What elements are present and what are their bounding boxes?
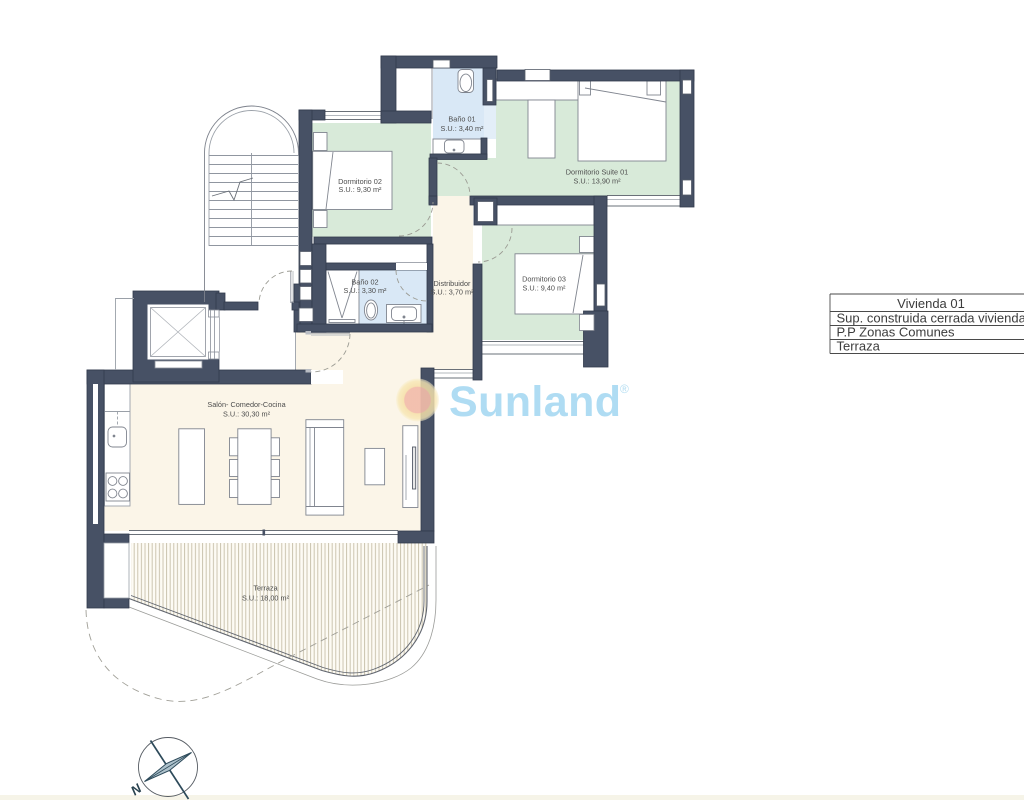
svg-text:®: ® bbox=[620, 382, 629, 396]
svg-text:Baño 01: Baño 01 bbox=[448, 115, 475, 124]
svg-text:Sunland: Sunland bbox=[449, 378, 621, 426]
svg-text:S.U.: 18,00 m²: S.U.: 18,00 m² bbox=[242, 594, 290, 603]
svg-text:Dormitorio Suite 01: Dormitorio Suite 01 bbox=[566, 168, 628, 177]
svg-text:Vivienda 01: Vivienda 01 bbox=[897, 296, 965, 311]
svg-text:Terraza: Terraza bbox=[253, 584, 278, 593]
svg-text:S.U.: 30,30 m²: S.U.: 30,30 m² bbox=[223, 410, 271, 419]
svg-text:S.U.: 9,40 m²: S.U.: 9,40 m² bbox=[523, 284, 567, 293]
svg-text:S.U.: 13,90 m²: S.U.: 13,90 m² bbox=[573, 177, 621, 186]
svg-text:S.U.: 3,40 m²: S.U.: 3,40 m² bbox=[441, 124, 485, 133]
svg-text:Salón- Comedor-Cocina: Salón- Comedor-Cocina bbox=[207, 400, 286, 409]
svg-text:Terraza: Terraza bbox=[837, 339, 881, 354]
svg-text:S.U.: 3,30 m²: S.U.: 3,30 m² bbox=[344, 286, 388, 295]
svg-text:Dormitorio 03: Dormitorio 03 bbox=[522, 275, 566, 284]
svg-text:Sup. construida cerrada vivien: Sup. construida cerrada vivienda bbox=[837, 311, 1024, 326]
svg-text:P.P Zonas Comunes: P.P Zonas Comunes bbox=[837, 325, 956, 340]
svg-text:S.U.: 9,30 m²: S.U.: 9,30 m² bbox=[339, 185, 383, 194]
svg-text:S.U.: 3,70 m²: S.U.: 3,70 m² bbox=[431, 288, 475, 297]
